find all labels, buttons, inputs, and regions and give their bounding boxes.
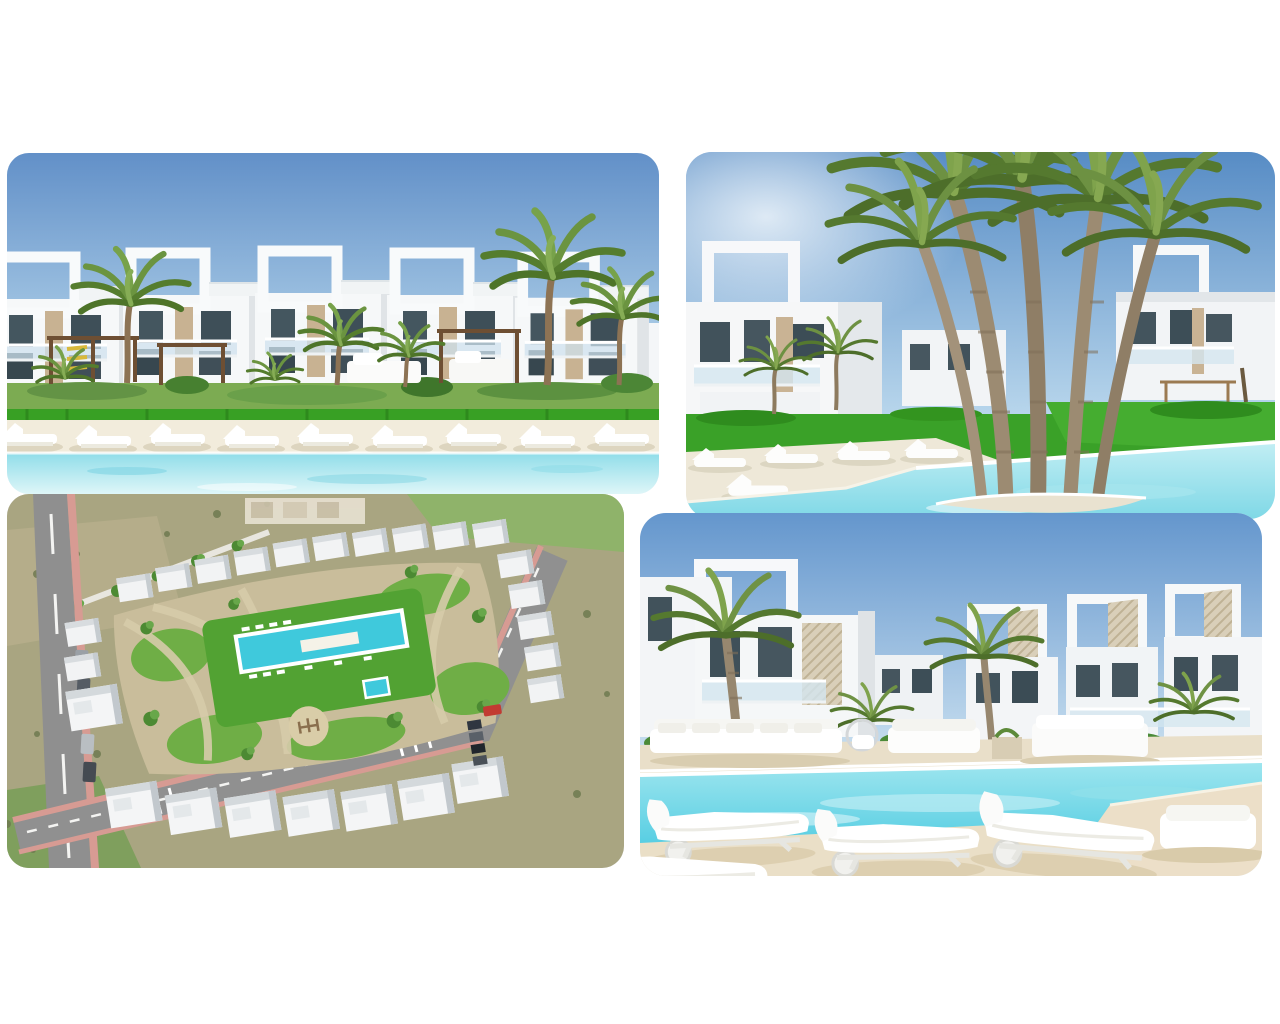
photo-palm-pool-view[interactable] xyxy=(686,152,1275,519)
tl-lagoon xyxy=(7,453,659,494)
photo-poolside-view[interactable] xyxy=(640,513,1262,876)
collage xyxy=(0,0,1280,1024)
photo-aerial-view[interactable] xyxy=(7,494,624,868)
photo-lagoon-view[interactable] xyxy=(7,153,659,494)
